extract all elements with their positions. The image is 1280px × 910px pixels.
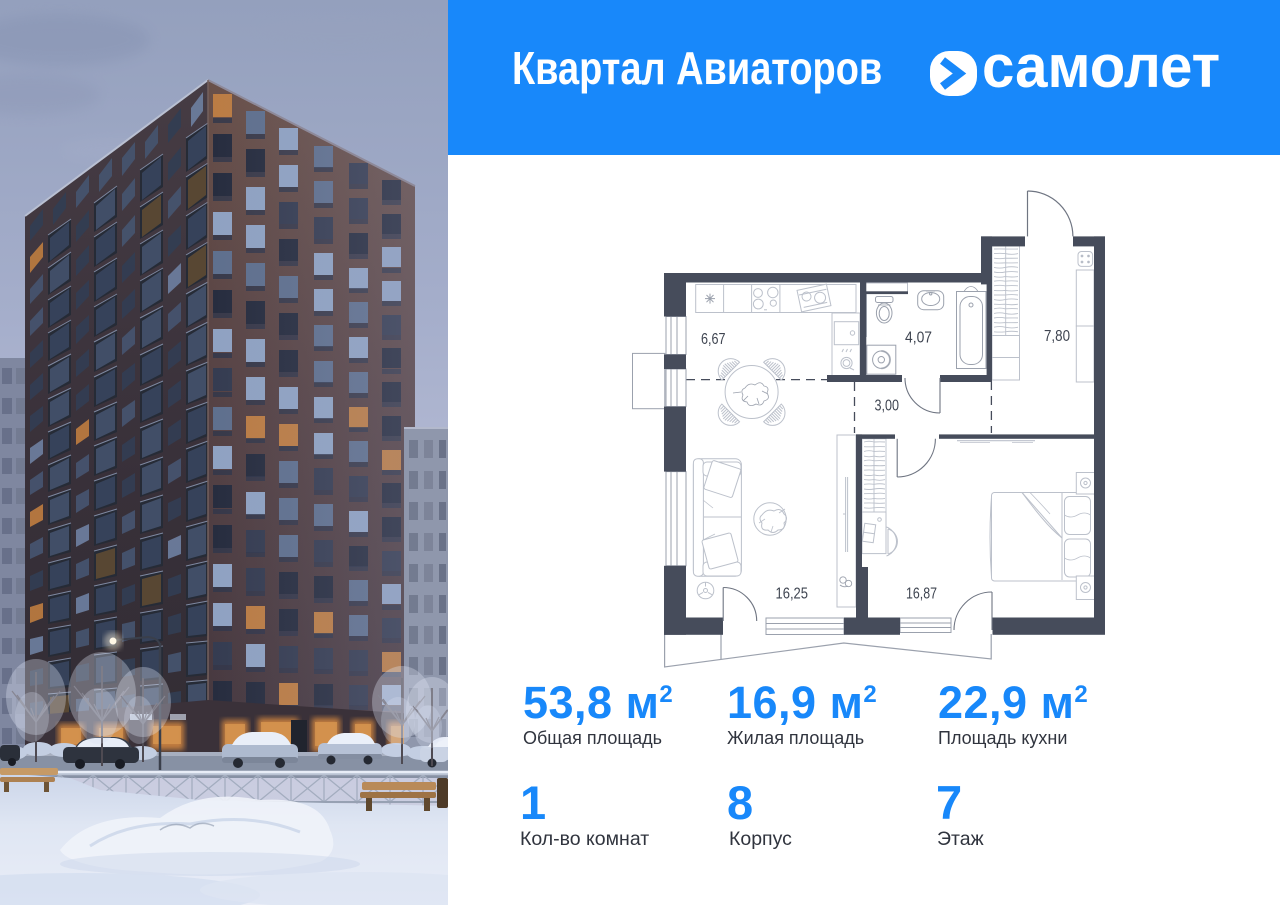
svg-text:4,07: 4,07 — [905, 330, 932, 347]
svg-text:16,25: 16,25 — [776, 586, 809, 603]
svg-text:3,00: 3,00 — [875, 398, 900, 415]
svg-text:6,67: 6,67 — [701, 331, 726, 348]
svg-text:7,80: 7,80 — [1044, 328, 1070, 345]
svg-text:16,87: 16,87 — [906, 586, 937, 603]
